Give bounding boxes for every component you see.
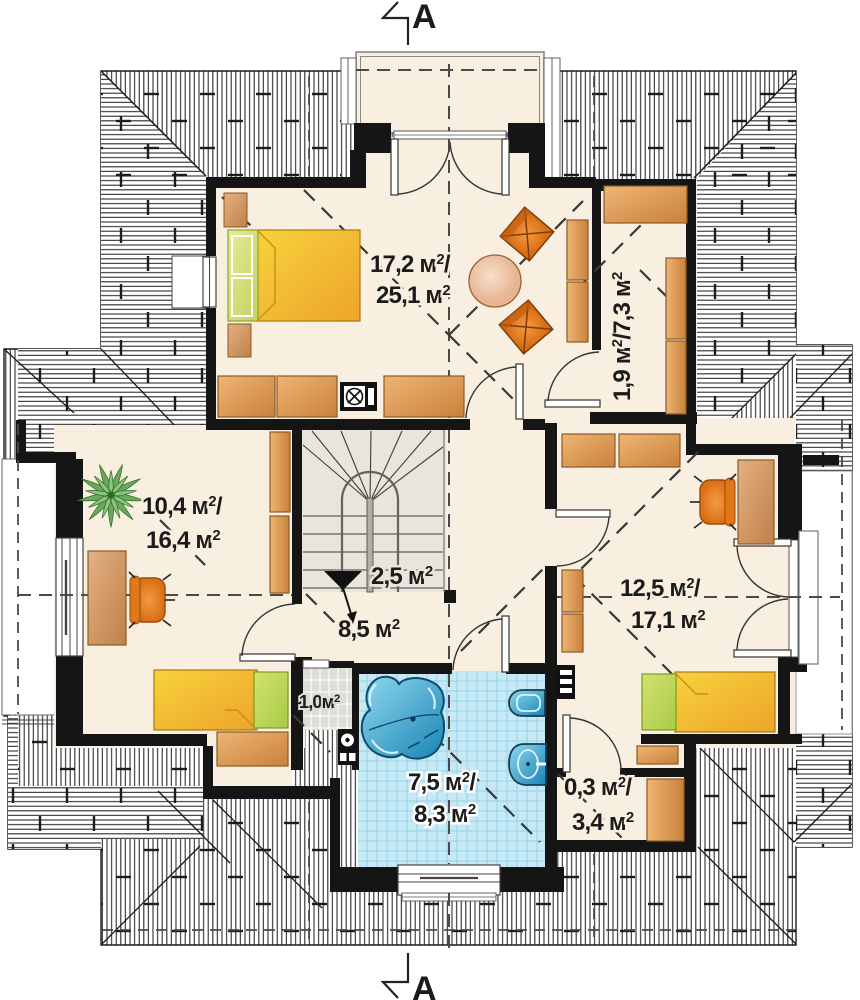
svg-text:A: A xyxy=(412,970,436,1000)
svg-text:8,5 м2: 8,5 м2 xyxy=(338,616,400,643)
svg-text:3,4 м2: 3,4 м2 xyxy=(572,809,634,836)
svg-text:17,1 м2: 17,1 м2 xyxy=(631,607,705,634)
svg-text:8,3 м2: 8,3 м2 xyxy=(414,801,476,828)
svg-text:1,9 м2/7,3 м2: 1,9 м2/7,3 м2 xyxy=(609,272,636,401)
svg-text:A: A xyxy=(412,0,436,36)
svg-text:16,4 м2: 16,4 м2 xyxy=(146,527,220,554)
svg-text:1,0м2: 1,0м2 xyxy=(299,692,340,712)
svg-text:2,5 м2: 2,5 м2 xyxy=(371,563,433,590)
svg-text:25,1 м2: 25,1 м2 xyxy=(376,282,450,309)
